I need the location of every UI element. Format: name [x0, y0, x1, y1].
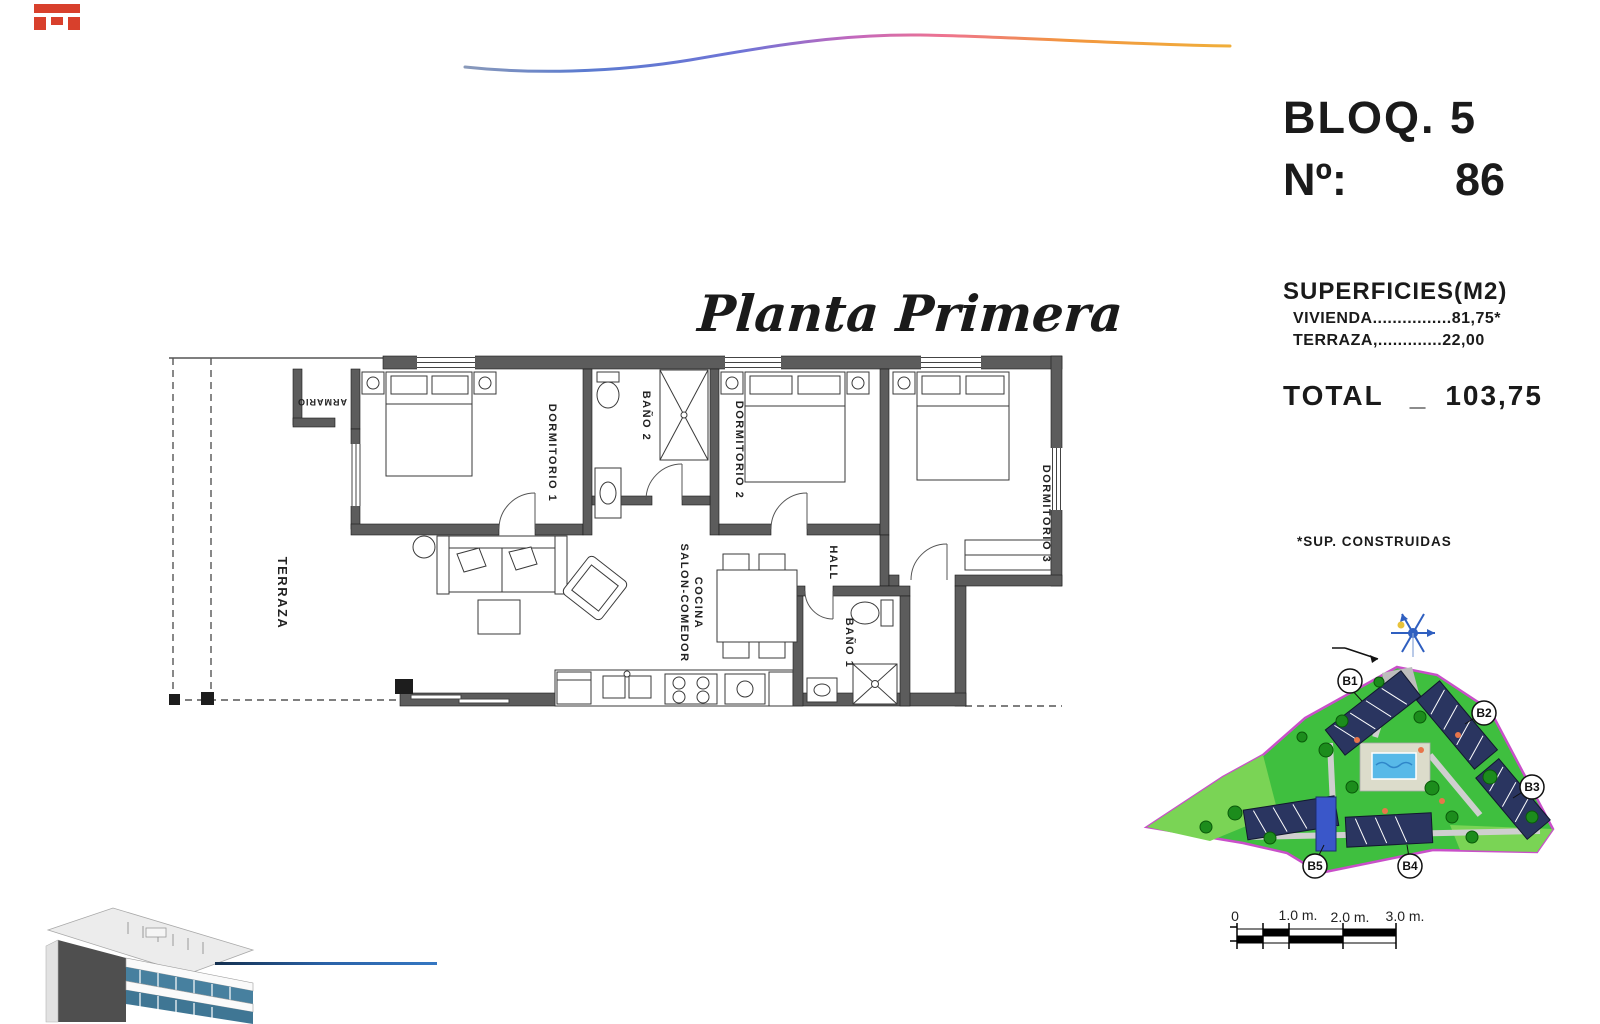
scale-tick-0: 0 [1231, 908, 1239, 924]
row-label: TERRAZA, [1293, 332, 1378, 349]
scale-bar: 0 1.0 m. 2.0 m. 3.0 m. [1180, 893, 1440, 955]
scale-tick-1: 1.0 m. [1279, 907, 1318, 923]
block-marker-b3: B3 [1524, 780, 1540, 794]
total-line: TOTAL _ 103,75 [1283, 380, 1501, 412]
row-dots: ............. [1378, 332, 1442, 349]
number-label: Nº: [1283, 154, 1347, 206]
logo-mark-icon [30, 2, 92, 32]
room-label-salon: SALON-COMEDOR [678, 543, 690, 662]
unit-title-block: BLOQ. 5 Nº: 86 [1283, 92, 1505, 206]
row-dots: ................ [1373, 310, 1452, 327]
pool [1372, 753, 1416, 779]
room-label-cocina: COCINA [692, 577, 704, 629]
gradient-swoosh-icon [440, 18, 1240, 90]
room-label-dormitorio2: DORMITORIO 2 [733, 401, 745, 499]
building-3d-render [18, 888, 268, 1024]
room-label-hall: HALL [827, 545, 839, 580]
site-plan: B1 B2 B3 B4 B5 [1120, 585, 1580, 885]
room-label-dormitorio3: DORMITORIO 3 [1040, 465, 1052, 563]
number-value: 86 [1455, 154, 1505, 206]
block-marker-b2: B2 [1476, 706, 1492, 720]
floor-plan-drawing: TERRAZA ARMARIO DORMITORIO 1 BAÑO 2 DORM… [165, 348, 1065, 720]
plan-title: Planta Primera [696, 284, 1125, 343]
room-label-bano1: BAÑO 1 [843, 618, 856, 669]
unit-number-line: Nº: 86 [1283, 154, 1505, 206]
total-separator: _ [1410, 380, 1428, 412]
total-value: 103,75 [1445, 380, 1543, 412]
block-marker-b4: B4 [1402, 859, 1418, 873]
scale-tick-2: 2.0 m. [1331, 909, 1370, 925]
compass-icon [1391, 614, 1435, 657]
block-marker-b5: B5 [1307, 859, 1323, 873]
row-label: VIVIENDA [1293, 310, 1373, 327]
surfaces-footnote: *SUP. CONSTRUIDAS [1297, 534, 1452, 549]
room-label-bano2: BAÑO 2 [640, 391, 653, 442]
row-value: 81,75* [1452, 310, 1501, 327]
scale-tick-3: 3.0 m. [1386, 908, 1425, 924]
total-label: TOTAL [1283, 380, 1384, 412]
surface-row-terraza: TERRAZA,.............22,00 [1293, 332, 1513, 350]
floorplan-sheet: { "brand": { "logo_color": "#d8402c" }, … [0, 0, 1600, 1024]
surfaces-title: SUPERFICIES(M2) [1283, 278, 1513, 306]
block-marker-b1: B1 [1342, 674, 1358, 688]
row-value: 22,00 [1442, 332, 1485, 349]
room-label-terraza: TERRAZA [275, 557, 290, 630]
entrance-arrow [1332, 648, 1378, 663]
blue-accent-line [215, 962, 437, 965]
surface-row-vivienda: VIVIENDA................81,75* [1293, 310, 1513, 328]
block-label: BLOQ. 5 [1283, 92, 1505, 144]
b5-tower [1316, 797, 1336, 851]
surfaces-block: SUPERFICIES(M2) VIVIENDA................… [1283, 278, 1513, 412]
columns [169, 679, 413, 705]
room-label-armario: ARMARIO [297, 397, 347, 407]
scale-bar-segments [1237, 929, 1396, 943]
room-label-dormitorio1: DORMITORIO 1 [546, 404, 558, 502]
furniture [362, 370, 1051, 706]
